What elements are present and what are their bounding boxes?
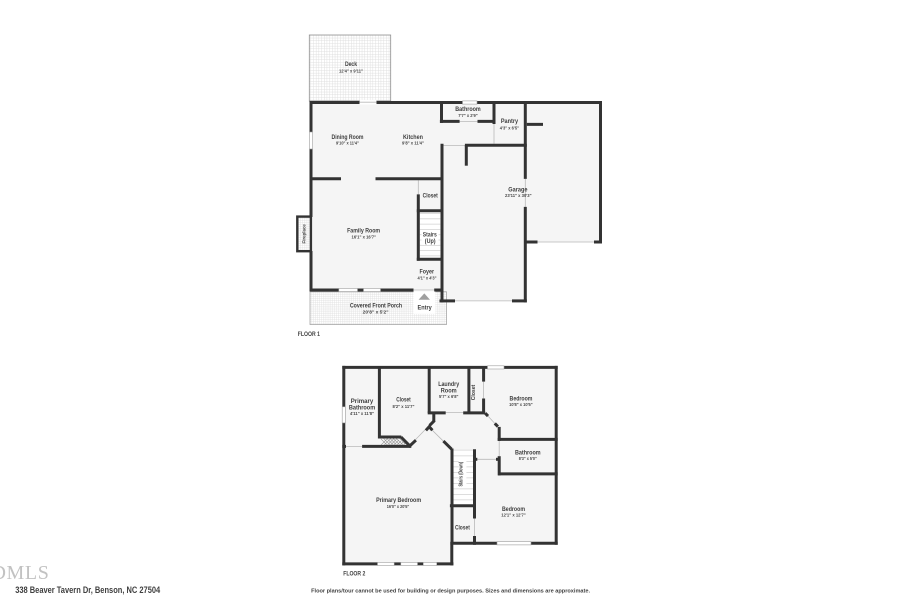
svg-text:9'8" x 11'4": 9'8" x 11'4" bbox=[402, 141, 424, 146]
svg-text:16'1" x 16'7": 16'1" x 16'7" bbox=[352, 235, 377, 240]
svg-text:12'1" x 12'7": 12'1" x 12'7" bbox=[501, 513, 526, 518]
svg-text:Closet: Closet bbox=[396, 397, 411, 404]
svg-text:23'11" x 30'3": 23'11" x 30'3" bbox=[505, 193, 532, 198]
svg-text:FLOOR 1: FLOOR 1 bbox=[298, 331, 320, 338]
svg-text:8'3" x 5'0": 8'3" x 5'0" bbox=[519, 456, 537, 461]
svg-text:4'11" x 11'8": 4'11" x 11'8" bbox=[350, 411, 374, 416]
svg-text:16'0" x 20'5": 16'0" x 20'5" bbox=[387, 504, 410, 509]
svg-text:Deck: Deck bbox=[345, 61, 357, 68]
svg-text:DMLS: DMLS bbox=[0, 562, 49, 584]
svg-text:Stairs (Down): Stairs (Down) bbox=[459, 462, 465, 487]
svg-text:(Up): (Up) bbox=[425, 238, 436, 245]
svg-text:Closet: Closet bbox=[471, 385, 477, 401]
svg-text:Pantry: Pantry bbox=[501, 118, 519, 125]
svg-text:Closet: Closet bbox=[455, 525, 470, 532]
svg-text:Fireplace: Fireplace bbox=[302, 224, 307, 244]
svg-text:4'3" x 6'5": 4'3" x 6'5" bbox=[500, 125, 519, 130]
svg-text:5'7" x 6'8": 5'7" x 6'8" bbox=[439, 394, 458, 399]
svg-text:4'1" x 4'3": 4'1" x 4'3" bbox=[418, 276, 437, 281]
svg-text:Family Room: Family Room bbox=[347, 228, 380, 235]
svg-text:7'7" x 2'9": 7'7" x 2'9" bbox=[458, 113, 478, 118]
svg-text:Floor plans/tour cannot be use: Floor plans/tour cannot be used for buil… bbox=[311, 589, 590, 595]
svg-text:9'10" x 11'4": 9'10" x 11'4" bbox=[336, 141, 359, 146]
svg-text:FLOOR 2: FLOOR 2 bbox=[343, 570, 365, 577]
svg-text:8'2" x 11'7": 8'2" x 11'7" bbox=[393, 404, 415, 409]
svg-text:Closet: Closet bbox=[423, 193, 438, 200]
svg-text:Entry: Entry bbox=[418, 304, 433, 311]
svg-text:12'4" x 9'11": 12'4" x 9'11" bbox=[339, 68, 363, 73]
svg-text:20'8" x 5'2": 20'8" x 5'2" bbox=[363, 310, 389, 315]
svg-text:338 Beaver Tavern Dr, Benson,: 338 Beaver Tavern Dr, Benson, NC 27504 bbox=[15, 585, 160, 595]
svg-text:10'8" x 10'5": 10'8" x 10'5" bbox=[509, 402, 533, 407]
